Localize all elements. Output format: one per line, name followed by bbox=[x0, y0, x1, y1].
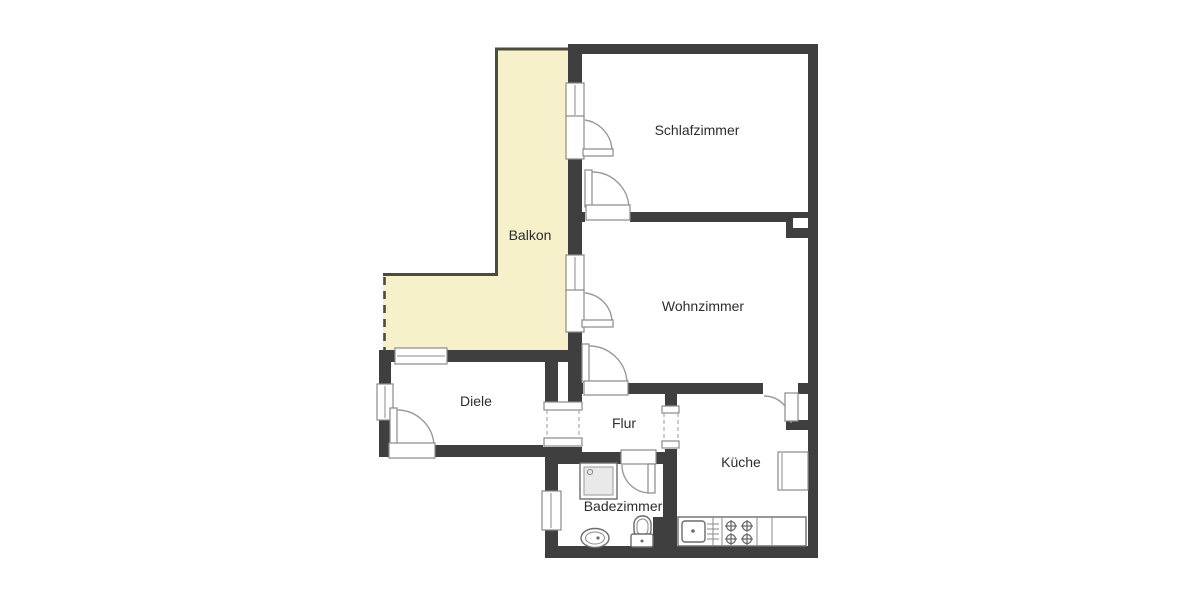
opening-flur-kueche bbox=[662, 406, 679, 449]
wall-bad-kueche bbox=[663, 452, 677, 558]
room-label-badezimmer: Badezimmer bbox=[584, 498, 663, 514]
wall-wohn-bottom-1 bbox=[568, 383, 583, 394]
shower-icon bbox=[580, 463, 617, 499]
door-schlafzimmer-wohnzimmer bbox=[585, 170, 630, 220]
door-badezimmer bbox=[621, 450, 656, 493]
wall-flur-bottom-1 bbox=[557, 452, 622, 464]
room-label-flur: Flur bbox=[612, 415, 636, 431]
door-flur-wohnzimmer bbox=[582, 344, 628, 395]
wall-diele-bottom-1 bbox=[379, 445, 390, 457]
balcony-fill bbox=[383, 49, 568, 352]
wall-balcony-2 bbox=[568, 158, 582, 255]
wall-right bbox=[808, 44, 818, 558]
opening-diele-flur bbox=[543, 402, 583, 447]
wall-diele-bottom-2 bbox=[434, 445, 562, 457]
wall-top bbox=[571, 44, 818, 54]
room-label-schlafzimmer: Schlafzimmer bbox=[655, 122, 740, 138]
room-label-kueche: Küche bbox=[721, 454, 761, 470]
room-label-diele: Diele bbox=[460, 393, 492, 409]
wall-divider bbox=[630, 212, 808, 222]
window-badezimmer-left bbox=[542, 491, 561, 530]
floorplan-svg: Balkon Schlafzimmer Wohnzimmer Diele Flu… bbox=[0, 0, 1200, 600]
door-kueche bbox=[764, 393, 798, 423]
wall-bad-left-1 bbox=[545, 446, 558, 493]
wall-band-left-top bbox=[545, 362, 558, 404]
washbasin-icon bbox=[581, 529, 609, 548]
door-schlafzimmer-balcony bbox=[566, 116, 613, 159]
wall-diele-left-1 bbox=[379, 350, 391, 386]
wall-wohn-bottom-2 bbox=[628, 383, 763, 394]
wall-niche bbox=[793, 218, 808, 228]
floorplan-canvas: Balkon Schlafzimmer Wohnzimmer Diele Flu… bbox=[0, 0, 1200, 600]
room-label-wohnzimmer: Wohnzimmer bbox=[662, 298, 745, 314]
balcony-area bbox=[383, 49, 571, 352]
toilet-icon bbox=[631, 516, 653, 547]
window-schlafzimmer-balcony bbox=[566, 83, 584, 117]
wall-balcony-1 bbox=[568, 44, 582, 83]
room-label-balkon: Balkon bbox=[509, 227, 552, 243]
door-wohnzimmer-balcony bbox=[566, 290, 613, 332]
window-diele-top bbox=[395, 348, 447, 364]
wall-bottom bbox=[545, 546, 818, 558]
wall-wohn-bottom-3 bbox=[798, 383, 818, 394]
door-diele-entrance bbox=[389, 408, 435, 458]
window-wohnzimmer-balcony bbox=[566, 255, 584, 292]
kitchen-appliance bbox=[778, 452, 808, 490]
wall-diele-top-2 bbox=[445, 350, 568, 362]
